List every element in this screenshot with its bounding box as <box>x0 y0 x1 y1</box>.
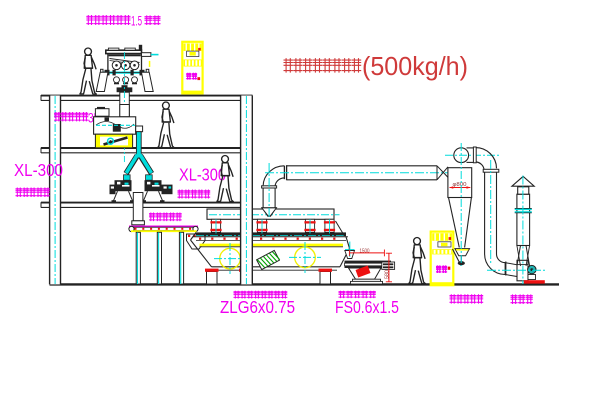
svg-text:1500: 1500 <box>360 248 370 254</box>
svg-text:(500kg/h): (500kg/h) <box>362 51 468 81</box>
svg-text:FS0.6x1.5: FS0.6x1.5 <box>335 297 399 317</box>
svg-text:ZLG6x0.75: ZLG6x0.75 <box>220 297 295 317</box>
svg-text:1.5: 1.5 <box>131 13 142 28</box>
svg-text:XL-300: XL-300 <box>179 165 226 185</box>
svg-text:580: 580 <box>385 270 391 279</box>
svg-text:XL-300: XL-300 <box>14 160 63 180</box>
